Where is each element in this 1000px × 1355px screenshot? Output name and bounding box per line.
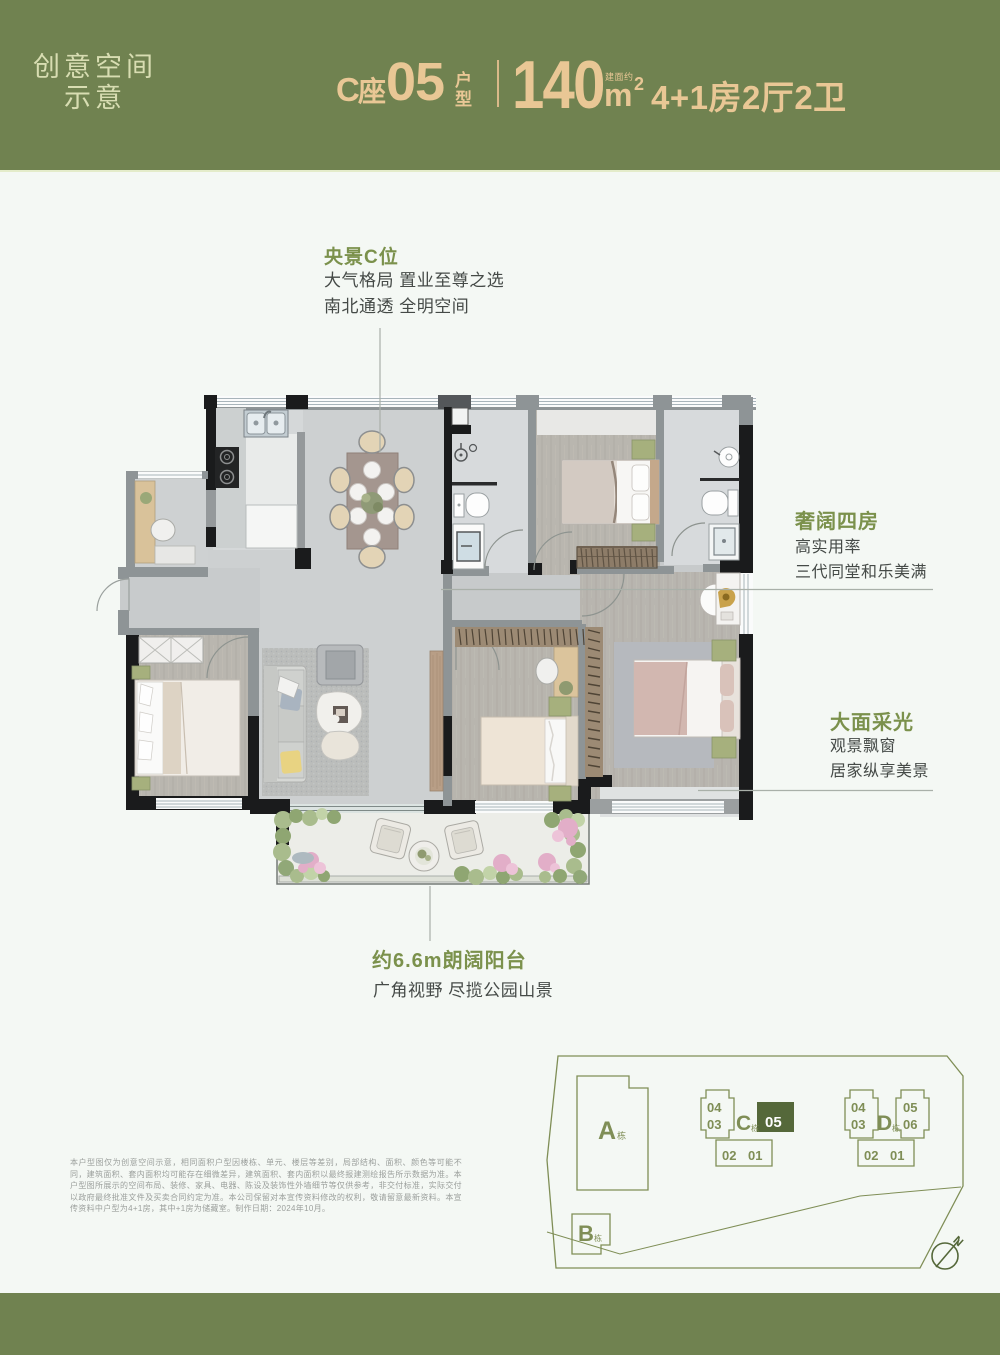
svg-text:01: 01 <box>748 1148 762 1163</box>
svg-text:栋: 栋 <box>594 1233 602 1243</box>
svg-text:01: 01 <box>890 1148 904 1163</box>
svg-text:02: 02 <box>864 1148 878 1163</box>
svg-text:栋: 栋 <box>751 1123 759 1133</box>
svg-text:05: 05 <box>765 1114 782 1131</box>
svg-text:04: 04 <box>851 1100 866 1115</box>
svg-text:03: 03 <box>851 1117 865 1132</box>
svg-text:栋: 栋 <box>892 1123 900 1133</box>
svg-text:A: A <box>598 1117 616 1145</box>
svg-text:02: 02 <box>722 1148 736 1163</box>
svg-text:B: B <box>578 1221 594 1246</box>
svg-text:05: 05 <box>903 1100 917 1115</box>
svg-text:06: 06 <box>903 1117 917 1132</box>
svg-text:03: 03 <box>707 1117 721 1132</box>
svg-text:D: D <box>877 1112 892 1135</box>
svg-text:C: C <box>736 1112 751 1135</box>
svg-text:04: 04 <box>707 1100 722 1115</box>
svg-text:栋: 栋 <box>617 1130 626 1141</box>
